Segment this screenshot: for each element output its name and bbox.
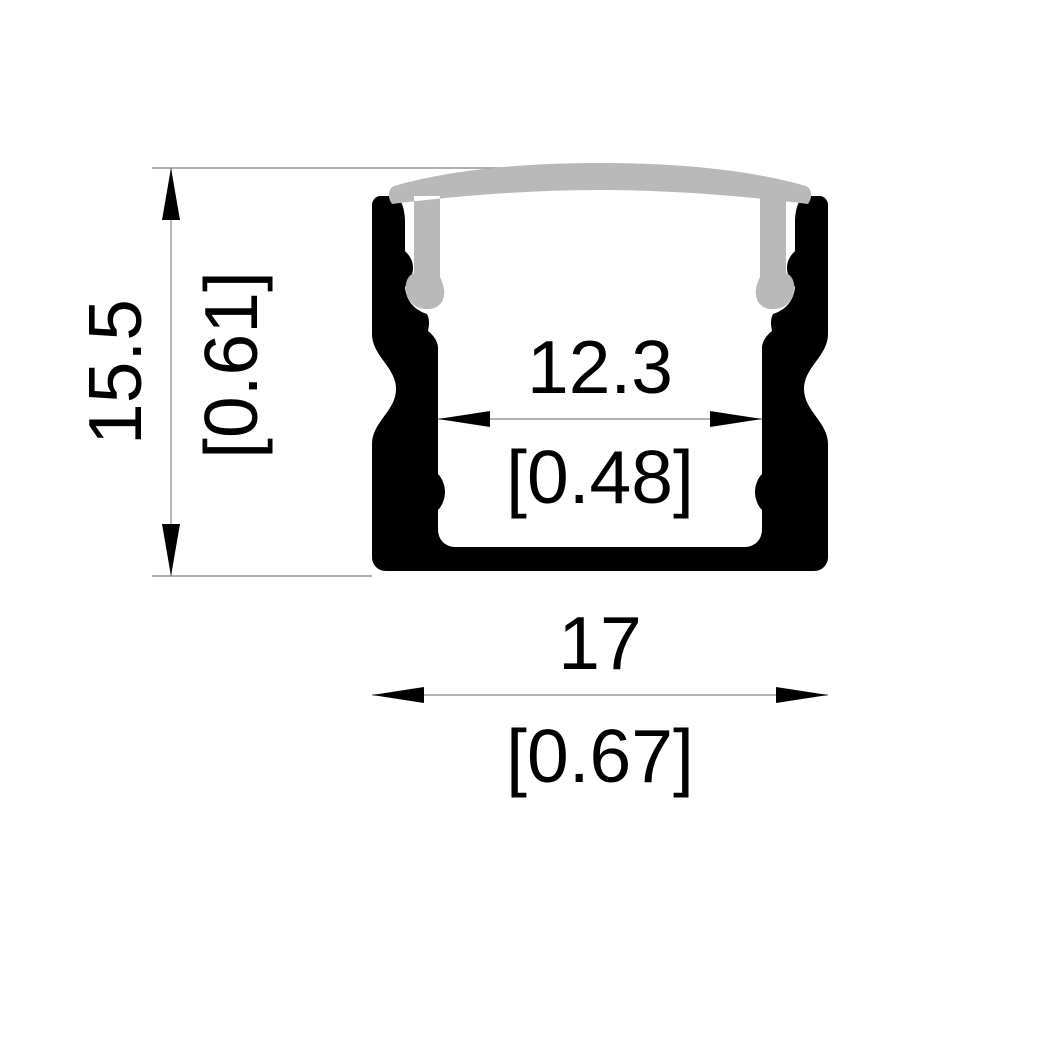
inner-width-value-inches: [0.48] xyxy=(506,435,694,519)
profile-cross-section-drawing: 15.5 [0.61] 12.3 [0.48] 17 [0.67] xyxy=(0,0,1042,1042)
height-value-mm: 15.5 xyxy=(73,299,157,445)
outer-width-value-mm: 17 xyxy=(558,601,641,685)
drawing-background xyxy=(0,0,1042,1042)
technical-drawing-canvas: 15.5 [0.61] 12.3 [0.48] 17 [0.67] xyxy=(0,0,1042,1042)
outer-width-value-inches: [0.67] xyxy=(506,714,694,798)
inner-width-value-mm: 12.3 xyxy=(527,325,673,409)
height-value-inches: [0.61] xyxy=(189,271,273,459)
